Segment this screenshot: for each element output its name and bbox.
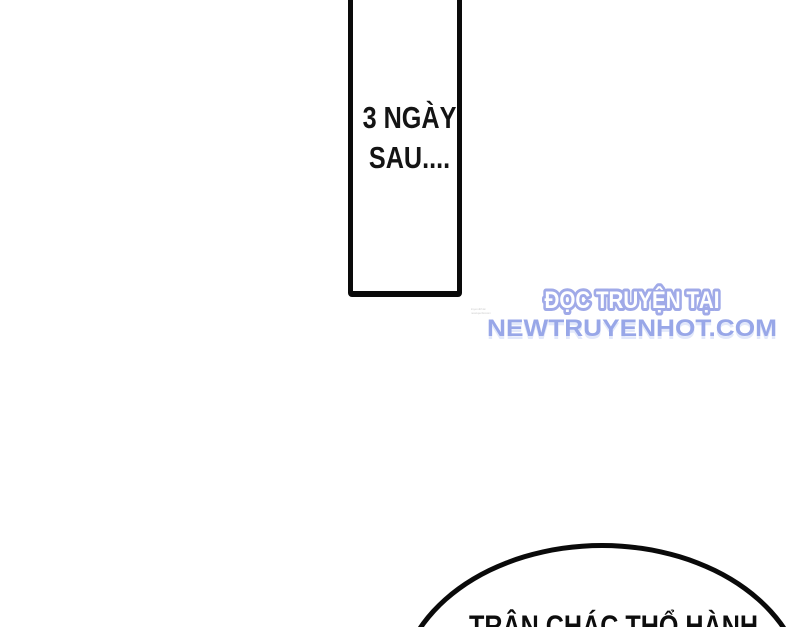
svg-text:TRẬN CHÁC THỔ HÀNH: TRẬN CHÁC THỔ HÀNH (469, 609, 758, 627)
